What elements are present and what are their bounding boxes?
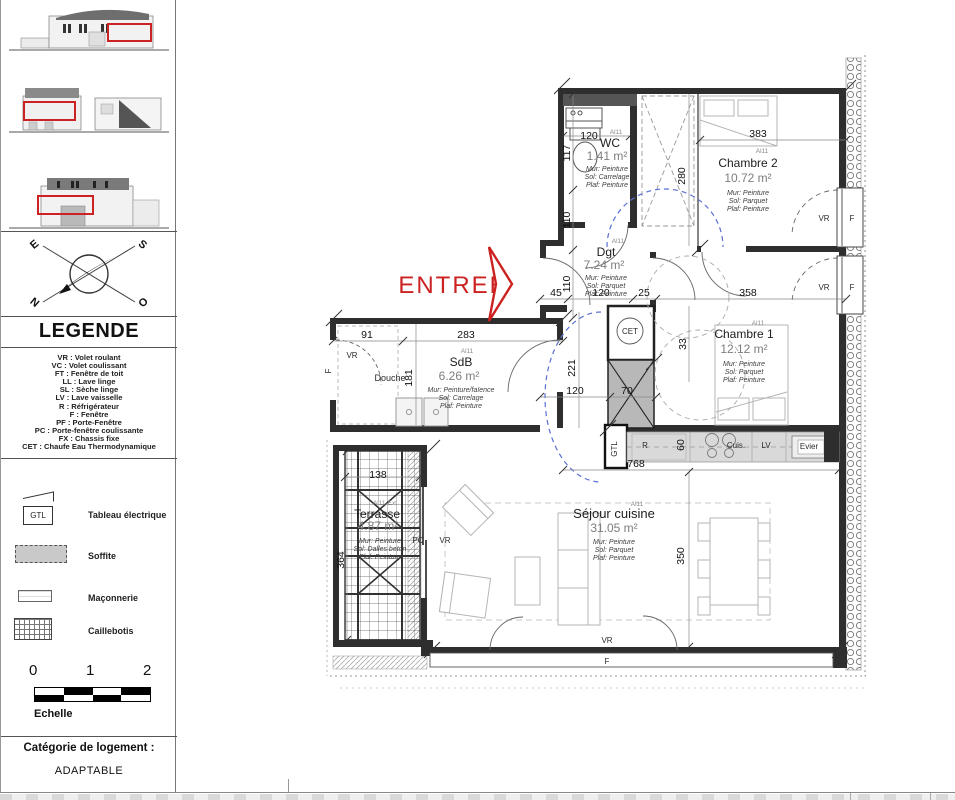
terrace-pc-label: PC xyxy=(412,536,423,545)
room-wc-mur: Mur: Peinture xyxy=(586,166,628,173)
room-sejour-mur: Mur: Peinture xyxy=(593,539,635,546)
dim-ch2-side: 280 xyxy=(676,167,688,185)
room-sejour-plaf: Plaf: Peinture xyxy=(593,555,635,562)
bottom-vr-label: VR xyxy=(601,636,612,645)
elevation-south xyxy=(9,178,169,228)
caillebotis-swatch xyxy=(14,618,52,640)
dim-duct: 70 xyxy=(621,385,633,397)
entree-label: ENTREE xyxy=(398,272,507,299)
legend-sidebar: E S N O LEGENDE VR : Volet roulant VC : … xyxy=(0,0,176,792)
room-chambre1-code: Al11 xyxy=(752,320,765,327)
room-chambre1-area: 12.12 m² xyxy=(720,342,767,356)
douche-vr-label: VR xyxy=(346,351,357,360)
dim-sdb-top-a: 91 xyxy=(361,329,373,341)
room-dgt-code: Al11 xyxy=(612,238,625,245)
room-terrasse-code: Al11-Ext xyxy=(373,500,397,507)
titleblock-divider xyxy=(288,779,289,792)
room-chambre1-sol: Sol: Parquet xyxy=(725,369,765,376)
scale-tick-0: 0 xyxy=(29,662,37,679)
dim-sejour-side: 350 xyxy=(675,547,687,565)
entry-marker: ENTREE xyxy=(398,247,512,321)
elevation-north xyxy=(9,10,169,50)
room-dgt-sol: Sol: Parquet xyxy=(587,283,627,290)
compass-e: E xyxy=(28,238,41,252)
category-value: ADAPTABLE xyxy=(1,765,177,777)
room-sdb-mur: Mur: Peinture/faïence xyxy=(428,387,495,394)
elevation-west xyxy=(9,88,169,132)
blueprint-canvas: 120 117 110 110 45 120 25 358 383 280 91… xyxy=(0,0,955,800)
room-sejour-area: 31.05 m² xyxy=(590,521,637,535)
scale-label: Echelle xyxy=(34,708,73,720)
dim-ch1-side: 33 xyxy=(677,338,689,350)
terrace-vr-label: VR xyxy=(439,536,450,545)
window1-vr-label: VR xyxy=(818,214,829,223)
compass-rose: E S N O xyxy=(1,232,177,316)
room-sdb-name: SdB xyxy=(450,355,473,369)
dining-set xyxy=(698,518,770,615)
dim-sdb-top-b: 283 xyxy=(457,329,475,341)
room-dgt-name: Dgt xyxy=(597,245,616,259)
dim-counter-depth: 60 xyxy=(675,439,687,451)
dim-wc-left: 117 xyxy=(561,144,573,161)
room-dgt-area: 7.24 m² xyxy=(584,258,625,272)
room-wc-sol: Sol: Carrelage xyxy=(585,174,630,181)
room-wc-name: WC xyxy=(600,136,620,150)
separator xyxy=(1,347,177,348)
dim-terrasse-top: 138 xyxy=(369,469,387,481)
room-chambre1-mur: Mur: Peinture xyxy=(723,361,765,368)
gtl-symbol: GTL xyxy=(23,506,53,525)
dim-hall-lower: 110 xyxy=(561,275,573,292)
separator xyxy=(1,458,177,459)
room-sdb-area: 6.26 m² xyxy=(439,369,480,383)
abbr-item: CET : Chaufe Eau Thermodynamique xyxy=(1,443,177,451)
room-wc-plaf: Plaf: Peinture xyxy=(586,182,628,189)
dim-hall-w2: 25 xyxy=(638,287,650,299)
soffite-swatch xyxy=(15,545,67,563)
room-sdb-sol: Sol: Carrelage xyxy=(439,395,484,402)
room-sejour-name: Séjour cuisine xyxy=(573,506,655,521)
room-chambre2-sol: Sol: Parquet xyxy=(729,198,769,205)
window1-f-label: F xyxy=(850,214,855,223)
scale-bar xyxy=(34,687,151,702)
symbol-row-caillebotis: Caillebotis xyxy=(1,614,177,654)
compass-o: O xyxy=(137,295,152,310)
room-chambre1-plaf: Plaf: Peinture xyxy=(723,377,765,384)
dim-terrasse-side: 364 xyxy=(335,551,347,569)
symbol-label-caillebotis: Caillebotis xyxy=(88,626,134,636)
room-sdb-plaf: Plaf: Peinture xyxy=(440,403,482,410)
dim-entry: 45 xyxy=(550,287,562,299)
room-terrasse-area: 4.87 m² xyxy=(358,519,399,533)
room-terrasse-plaf: Plaf: Peinture xyxy=(359,554,401,561)
dishwasher-label: LV xyxy=(761,441,771,450)
maconnerie-swatch xyxy=(18,590,52,602)
room-terrasse-mur: Mur: Peinture xyxy=(359,538,401,545)
symbol-label-tableau: Tableau électrique xyxy=(88,510,166,520)
titleblock-divider xyxy=(930,793,931,800)
legend-title: LEGENDE xyxy=(1,320,177,343)
scale-ticks: 0 1 2 xyxy=(1,662,177,680)
bottom-window-band xyxy=(430,653,833,667)
titleblock-strip xyxy=(0,794,955,800)
left-window-f-label: F xyxy=(324,368,333,373)
elevation-views xyxy=(1,0,177,232)
compass-s: S xyxy=(136,238,149,252)
fridge-label: R xyxy=(642,441,648,450)
window2-f-label: F xyxy=(850,283,855,292)
category-title: Catégorie de logement : xyxy=(1,742,177,754)
room-wc-area: 1.41 m² xyxy=(587,149,628,163)
symbol-label-soffite: Soffite xyxy=(88,551,116,561)
bottom-f-label: F xyxy=(605,657,610,666)
room-terrasse-sol: Sol: Dalles beton xyxy=(354,546,407,553)
skylight-ft-zone xyxy=(642,96,694,226)
room-wc-code: Al11 xyxy=(610,129,623,136)
titleblock-divider xyxy=(850,793,851,800)
dim-kitchen-run: 768 xyxy=(627,458,645,470)
room-sejour-sol: Sol: Parquet xyxy=(595,547,635,554)
separator xyxy=(1,736,177,737)
dim-ch1-top: 358 xyxy=(739,287,757,299)
sink-label: Evier xyxy=(800,442,819,451)
room-chambre2-mur: Mur: Peinture xyxy=(727,190,769,197)
separator xyxy=(1,316,177,317)
room-chambre2-name: Chambre 2 xyxy=(718,156,778,170)
room-sdb-code: Al11 xyxy=(461,348,474,355)
compass-n: N xyxy=(27,296,41,310)
dim-ch2-top: 383 xyxy=(749,128,767,140)
hob-label: Cuis. xyxy=(727,441,745,450)
room-chambre2-code: Al11 xyxy=(756,148,769,155)
symbol-row-tableau: GTL Tableau électrique xyxy=(1,498,177,538)
legend-abbreviations: VR : Volet roulant VC : Volet coulissant… xyxy=(1,354,177,451)
dim-hall-upper: 110 xyxy=(561,211,573,228)
room-chambre1-name: Chambre 1 xyxy=(714,327,774,341)
dim-corridor: 221 xyxy=(566,359,578,377)
symbol-label-maconnerie: Maçonnerie xyxy=(88,593,138,603)
dim-wc-top: 120 xyxy=(580,130,598,142)
scale-tick-1: 1 xyxy=(86,662,94,679)
room-chambre2-plaf: Plaf: Peinture xyxy=(727,206,769,213)
cet-label: CET xyxy=(622,327,638,336)
titleblock-top-line xyxy=(0,792,955,793)
dim-sdb-bottom: 120 xyxy=(566,385,584,397)
douche-label: Douche xyxy=(374,373,405,383)
window2-vr-label: VR xyxy=(818,283,829,292)
gtl-label: GTL xyxy=(610,441,619,457)
room-dgt-plaf: Plaf: Peinture xyxy=(585,291,627,298)
room-chambre2-area: 10.72 m² xyxy=(724,171,771,185)
scale-tick-2: 2 xyxy=(143,662,151,679)
room-dgt-mur: Mur: Peinture xyxy=(585,275,627,282)
symbol-row-soffite: Soffite xyxy=(1,539,177,579)
